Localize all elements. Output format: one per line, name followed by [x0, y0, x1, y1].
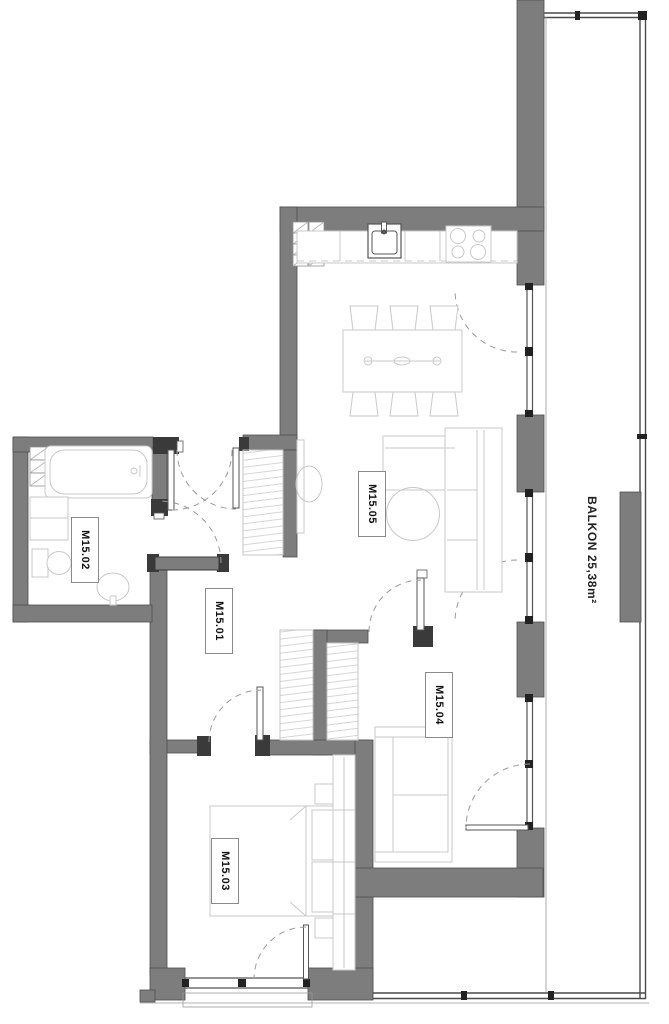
room-label-hallway: M15.01: [205, 588, 233, 654]
toilet: [32, 549, 71, 577]
balcony-privacy-screen: [620, 492, 641, 622]
console-with-mirror: [296, 440, 322, 533]
balcony-door-bedroom: [254, 925, 309, 979]
bathroom-door: [168, 450, 232, 510]
room-label-bathroom-text: M15.02: [79, 530, 91, 570]
coffee-table: [387, 488, 440, 541]
stove: [446, 226, 491, 262]
balcony-window-living-2: [525, 489, 533, 624]
window-sill: [183, 993, 312, 1007]
bathtub: [45, 446, 152, 498]
room-label-living: M15.05: [358, 471, 386, 537]
washer-cabinet: [30, 497, 68, 540]
floor-plan-drawing: [0, 0, 669, 1024]
bedroom-door: [209, 687, 263, 742]
balcony-window-living-1: [525, 283, 533, 417]
balcony-door-room2-window: [525, 694, 533, 830]
room-label-bedroom-text: M15.03: [219, 851, 231, 891]
wardrobe-living: [243, 450, 283, 555]
room-label-living-text: M15.05: [366, 484, 378, 524]
room-label-room2-text: M15.04: [433, 685, 445, 725]
kitchen-sink: [368, 222, 401, 258]
room-label-bathroom: M15.02: [71, 517, 99, 583]
closet-room2: [327, 643, 358, 740]
room-label-bedroom: M15.03: [211, 838, 239, 904]
balcony-door-swing-living-1: [455, 290, 517, 352]
sofa: [383, 428, 502, 592]
closet-hallway: [280, 630, 313, 740]
sofa-room2: [375, 727, 452, 862]
dining-table: [343, 306, 462, 416]
room2-door: [369, 578, 424, 632]
balcony-label-text: BALKON 25,38m²: [585, 496, 599, 604]
room-label-room2: M15.04: [425, 672, 453, 738]
balcony-label: BALKON 25,38m²: [583, 490, 601, 610]
balcony-door-room2: [466, 764, 530, 830]
bathroom-sink: [97, 573, 129, 605]
floor-plan: M15.01 M15.02 M15.03 M15.04 M15.05 BALKO…: [0, 0, 669, 1024]
room-label-hallway-text: M15.01: [213, 601, 225, 641]
wardrobe-bedroom: [333, 755, 355, 970]
living-room-door: [177, 448, 239, 509]
